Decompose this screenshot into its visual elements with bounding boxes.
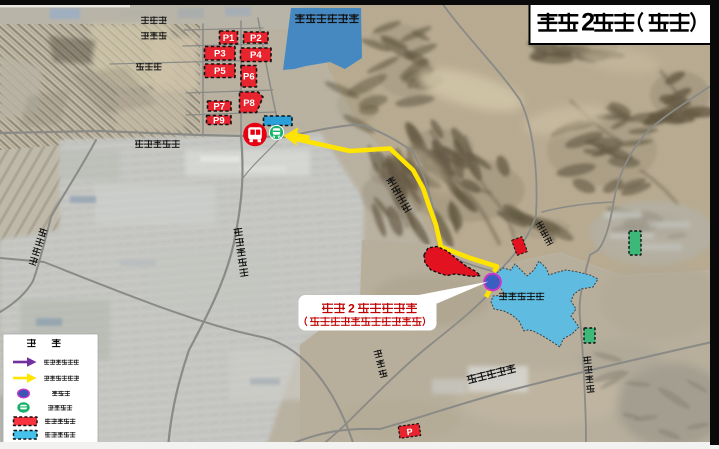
svg-text:P8: P8 (243, 98, 255, 109)
svg-text:P1: P1 (223, 33, 235, 44)
svg-text:P5: P5 (214, 66, 226, 77)
svg-text:2: 2 (581, 8, 595, 36)
svg-text:P3: P3 (214, 49, 226, 60)
svg-text:P9: P9 (213, 115, 225, 126)
svg-text:2: 2 (348, 302, 355, 316)
svg-text:P6: P6 (243, 72, 255, 83)
svg-text:P4: P4 (250, 50, 262, 61)
svg-text:P7: P7 (213, 101, 225, 112)
svg-text:P2: P2 (250, 33, 262, 44)
